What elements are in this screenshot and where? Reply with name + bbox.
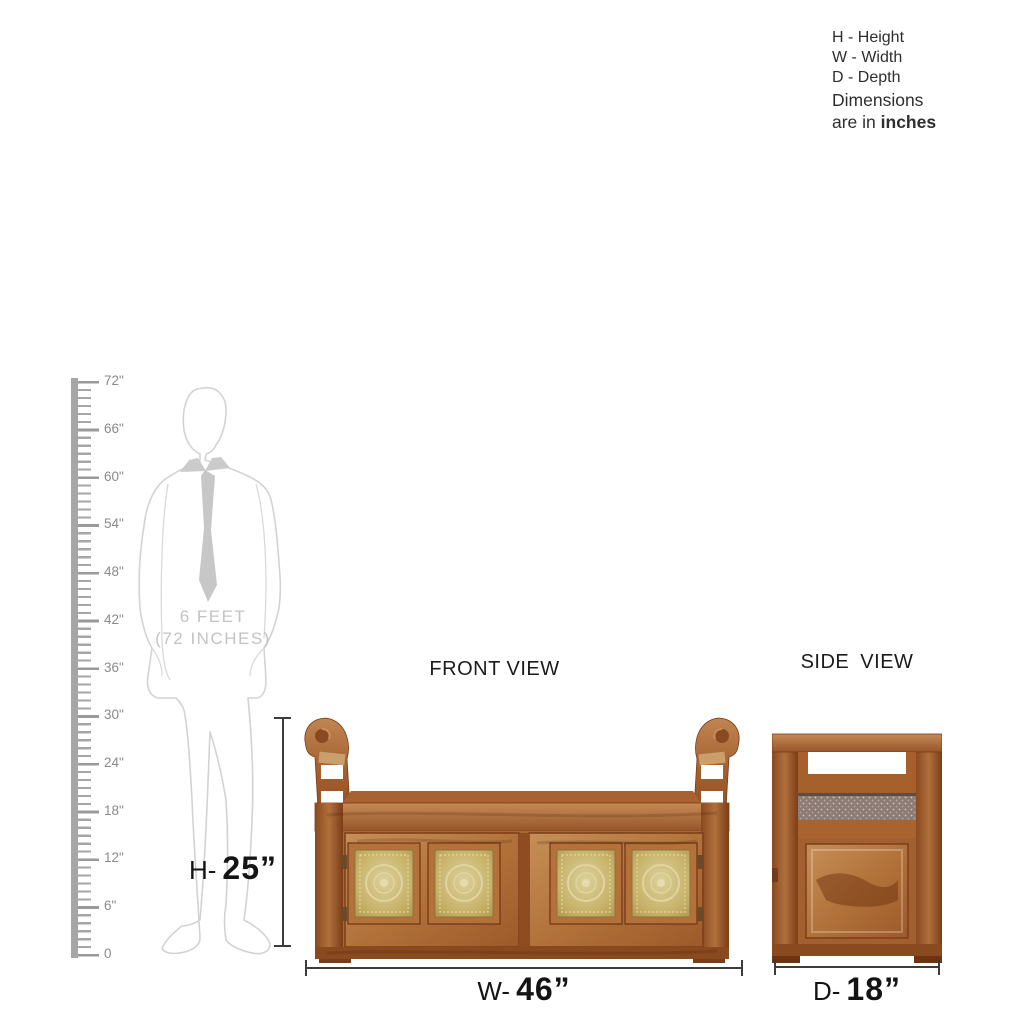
side-hinge-mark <box>772 868 778 882</box>
depth-prefix: D- <box>813 976 840 1007</box>
side-bottom-rail <box>772 944 942 956</box>
side-mesh-band <box>798 796 916 820</box>
legend: H - Height W - Width D - Depth Dimension… <box>832 28 936 132</box>
front-right-stile <box>701 803 729 949</box>
legend-note-line2: are in inches <box>832 113 936 132</box>
front-view-title: FRONT VIEW <box>397 658 592 681</box>
legend-height: H - Height <box>832 28 936 48</box>
height-value: 25” <box>222 850 277 887</box>
width-dimension-cap-left <box>305 960 307 976</box>
front-left-foot <box>319 959 351 963</box>
legend-note-line1: Dimensions <box>832 91 936 110</box>
side-window <box>798 752 916 776</box>
side-left-foot <box>772 956 800 963</box>
front-left-stile <box>315 803 343 949</box>
side-mid-rail <box>798 820 916 838</box>
side-left-stile <box>772 734 798 958</box>
depth-dimension-label: D- 18” <box>772 971 942 1008</box>
width-dimension-label: W- 46” <box>404 971 644 1008</box>
height-prefix: H- <box>189 855 216 886</box>
width-dimension-line <box>305 967 743 969</box>
side-window-post-left <box>798 752 808 776</box>
silhouette-caption-line2: (72 INCHES) <box>128 628 298 650</box>
depth-value: 18” <box>846 971 901 1008</box>
height-dimension-label: H- 25” <box>157 850 277 887</box>
side-view-title: SIDE VIEW <box>772 651 942 674</box>
height-dimension-line <box>282 718 284 947</box>
front-tray-edge <box>343 791 701 803</box>
product-dimension-diagram: H - Height W - Width D - Depth Dimension… <box>0 0 1024 1024</box>
silhouette-caption-line1: 6 FEET <box>128 606 298 628</box>
front-center-stile <box>519 833 529 947</box>
width-prefix: W- <box>477 976 510 1007</box>
side-mesh-edge <box>798 793 916 796</box>
legend-width: W - Width <box>832 48 936 68</box>
legend-note-prefix: are in <box>832 112 881 132</box>
bench-front-view-image <box>297 711 747 963</box>
side-top-rail <box>772 734 942 752</box>
side-window-post-right <box>906 752 916 776</box>
legend-note-unit: inches <box>881 112 936 132</box>
front-right-foot <box>693 959 725 963</box>
height-dimension-cap-bottom <box>274 945 291 947</box>
side-right-stile <box>916 734 942 958</box>
silhouette-caption: 6 FEET (72 INCHES) <box>128 606 298 650</box>
ruler-spine <box>71 378 78 958</box>
width-value: 46” <box>516 971 571 1008</box>
legend-depth: D - Depth <box>832 68 936 88</box>
height-dimension-cap-top <box>274 717 291 719</box>
side-upper-rail <box>798 774 916 796</box>
ruler-major-ticks <box>78 381 99 958</box>
bench-side-view-image <box>772 730 942 963</box>
width-dimension-cap-right <box>741 960 743 976</box>
front-top-rail <box>315 803 729 831</box>
depth-dimension-line <box>774 966 940 968</box>
